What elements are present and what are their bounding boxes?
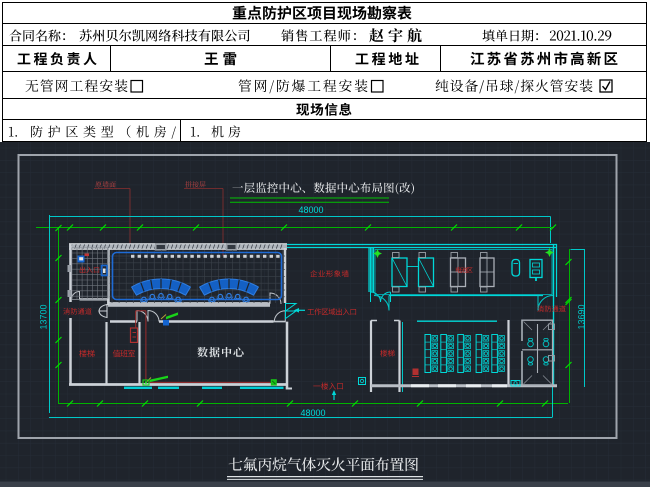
svg-text:13690: 13690 (577, 304, 587, 329)
svg-text:48000: 48000 (300, 408, 325, 418)
svg-text:13700: 13700 (39, 304, 49, 329)
svg-text:48000: 48000 (298, 205, 323, 215)
